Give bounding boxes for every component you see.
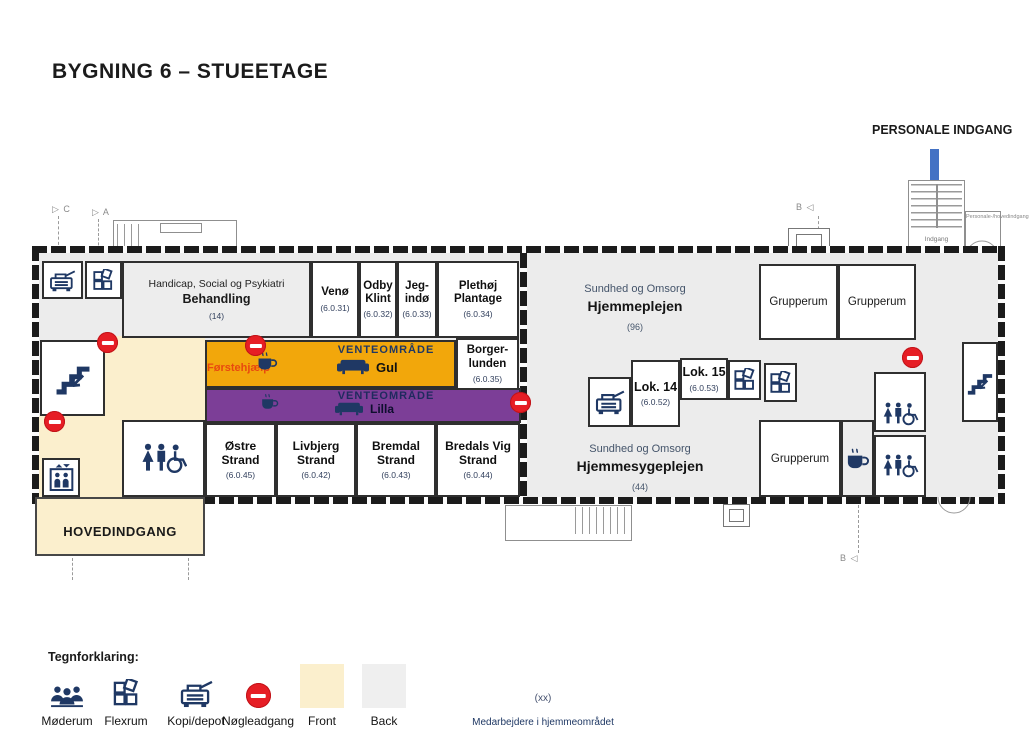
room-lok14-number: (6.0.52)	[641, 397, 670, 407]
exterior-shaft-south-inner	[729, 509, 744, 522]
legend-label-moederum: Møderum	[41, 714, 92, 728]
venteomraade-gul-title: VENTEOMRÅDE	[306, 344, 466, 356]
legend-label-flexrum: Flexrum	[104, 714, 147, 728]
legend-label-noegleadgang: Nøgleadgang	[222, 714, 294, 728]
room-venoe-name: Venø	[321, 286, 348, 299]
flexroom-icon-b	[769, 371, 793, 395]
room-plethoej-plantage: Plethøj Plantage (6.0.34)	[437, 261, 519, 338]
area-hjemmeplejen: Sundhed og Omsorg Hjemmeplejen (96)	[540, 283, 730, 333]
section-marker-b-top: B ◁	[796, 202, 814, 213]
room-bremdal-strand: Bremdal Strand (6.0.43)	[356, 423, 436, 497]
copier-icon	[49, 269, 76, 292]
no-entry-icon-legend	[246, 683, 271, 708]
section-marker-a: ▷ A	[92, 207, 110, 218]
flexroom-icon-legend	[112, 679, 141, 708]
room-venoe-number: (6.0.31)	[320, 303, 349, 313]
room-venoe: Venø (6.0.31)	[311, 261, 359, 338]
room-jegindoe-name: Jeg-indø	[399, 280, 435, 306]
room-plethoej-name: Plethøj Plantage	[439, 280, 517, 306]
room-plethoej-number: (6.0.34)	[463, 309, 492, 319]
room-lok14: Lok. 14 (6.0.52)	[631, 360, 680, 427]
legend-item-flexrum: Flexrum	[96, 674, 156, 728]
wall-west	[32, 246, 39, 504]
legend-item-moederum: Møderum	[36, 674, 98, 728]
hjemmesygeplejen-line2: Hjemmesygeplejen	[540, 458, 740, 475]
exterior-landing	[160, 223, 202, 233]
room-borgerlunden: Borger-lunden (6.0.35)	[456, 338, 519, 390]
room-grupperum-2: Grupperum	[838, 264, 916, 340]
venteomraade-lilla-title: VENTEOMRÅDE	[306, 390, 466, 402]
personale-note: Personale-/hovedindgang	[966, 214, 1000, 220]
legend-item-back: Back	[358, 662, 410, 728]
room-livbjerg-number: (6.0.42)	[301, 470, 330, 480]
copier-icon-legend	[180, 679, 213, 708]
room-behandling-count: (14)	[209, 311, 224, 321]
hovedindgang-label: HOVEDINDGANG	[35, 524, 205, 539]
back-swatch	[362, 664, 406, 708]
venteomraade-lilla-name-row: Lilla	[334, 402, 394, 416]
wc-icon-right-top	[881, 402, 919, 426]
section-line-c	[58, 216, 59, 250]
room-livbjerg-name: Livbjerg Strand	[278, 440, 354, 468]
room-behandling-line1: Handicap, Social og Psykiatri	[149, 278, 285, 290]
room-jegindoe-number: (6.0.33)	[402, 309, 431, 319]
room-stairs-left	[40, 340, 105, 416]
room-lok15-name: Lok. 15	[682, 365, 725, 379]
inner-section-wall	[520, 253, 527, 497]
room-elevator	[42, 458, 80, 497]
no-entry-icon-1	[97, 332, 118, 353]
stair-rail	[936, 184, 938, 228]
room-wc-left	[122, 420, 205, 497]
page-title: BYGNING 6 – STUEETAGE	[52, 60, 328, 84]
wall-south	[200, 497, 1005, 504]
grupperum-1-label: Grupperum	[769, 296, 827, 308]
venteomraade-gul-name: Gul	[376, 360, 398, 375]
room-borgerlunden-number: (6.0.35)	[473, 374, 502, 384]
hjemmesygeplejen-count: (44)	[540, 482, 740, 493]
room-bredals-number: (6.0.44)	[463, 470, 492, 480]
room-kopi-depot-left	[42, 261, 83, 299]
legend-label-back: Back	[371, 714, 398, 728]
room-behandling: Handicap, Social og Psykiatri Behandling…	[122, 261, 311, 338]
room-wc-right-top	[874, 372, 926, 432]
no-entry-icon-4	[510, 392, 531, 413]
copier-icon-right	[595, 389, 625, 415]
elevator-icon	[49, 463, 74, 492]
section-line-b-bottom	[858, 505, 859, 553]
staff-count-symbol: (xx)	[535, 693, 552, 704]
room-jegindoe: Jeg-indø (6.0.33)	[397, 261, 437, 338]
venteomraade-lilla-name: Lilla	[370, 402, 394, 416]
hovedindgang-dash-2	[188, 558, 189, 580]
room-bremdal-name: Bremdal Strand	[358, 440, 434, 468]
area-hjemmesygeplejen: Sundhed og Omsorg Hjemmesygeplejen (44)	[540, 443, 740, 493]
room-oestre-name: Østre Strand	[207, 440, 274, 468]
room-borgerlunden-name: Borger-lunden	[458, 344, 517, 370]
room-bremdal-number: (6.0.43)	[381, 470, 410, 480]
room-lok15-number: (6.0.53)	[689, 383, 718, 393]
couch-icon-lilla	[334, 402, 364, 416]
couch-icon-gul	[336, 359, 370, 375]
stairs-icon-left	[54, 361, 92, 395]
front-swatch	[300, 664, 344, 708]
room-grupperum-1: Grupperum	[759, 264, 838, 340]
grupperum-3-label: Grupperum	[771, 453, 829, 465]
hjemmesygeplejen-line1: Sundhed og Omsorg	[540, 443, 740, 456]
grupperum-2-label: Grupperum	[848, 296, 906, 308]
wall-east	[998, 246, 1005, 504]
section-marker-c: ▷ C	[52, 204, 71, 215]
hjemmeplejen-line1: Sundhed og Omsorg	[540, 283, 730, 296]
no-entry-icon-2	[245, 335, 266, 356]
room-bredals-vig-strand: Bredals Vig Strand (6.0.44)	[436, 423, 520, 497]
room-bredals-name: Bredals Vig Strand	[438, 440, 518, 468]
room-coffee	[841, 420, 874, 497]
room-stairs-right	[962, 342, 998, 422]
coffee-cup-icon-right	[845, 446, 870, 471]
room-odby-number: (6.0.32)	[363, 309, 392, 319]
hjemmeplejen-count: (96)	[540, 322, 730, 333]
legend-item-noegleadgang: Nøgleadgang	[216, 674, 300, 728]
room-lok15: Lok. 15 (6.0.53)	[680, 358, 728, 400]
floor-plan-page: BYGNING 6 – STUEETAGE PERSONALE INDGANG …	[0, 0, 1036, 739]
wc-icon-right-bottom	[881, 454, 919, 478]
room-oestre-number: (6.0.45)	[226, 470, 255, 480]
room-flexrum-a	[728, 360, 761, 400]
personale-indgang-label: PERSONALE INDGANG	[872, 123, 1012, 137]
indgang-label: Indgang	[908, 236, 965, 243]
room-wc-right-bottom	[874, 435, 926, 497]
meeting-icon	[50, 683, 84, 708]
room-flexrum-left	[85, 261, 122, 299]
wc-icon-left	[140, 443, 187, 474]
stairs-icon-right	[966, 370, 994, 395]
no-entry-icon-5	[902, 347, 923, 368]
room-kopi-depot-right	[588, 377, 631, 427]
venteomraade-gul-name-row: Gul	[336, 359, 398, 375]
room-livbjerg-strand: Livbjerg Strand (6.0.42)	[276, 423, 356, 497]
flexroom-icon-a	[733, 368, 757, 392]
room-behandling-line2: Behandling	[182, 292, 250, 306]
legend-item-staff: (xx) Medarbejdere i hjemmeområdet	[462, 674, 624, 728]
coffee-cup-icon-lilla	[260, 392, 279, 411]
door-arc-south	[936, 497, 972, 515]
room-grupperum-3: Grupperum	[759, 420, 841, 497]
flexroom-icon	[92, 269, 115, 292]
room-odby-name: Odby Klint	[361, 280, 395, 306]
room-lok14-name: Lok. 14	[634, 380, 677, 394]
room-odby-klint: Odby Klint (6.0.32)	[359, 261, 397, 338]
exterior-stair-south-treads	[575, 507, 629, 534]
wall-north	[32, 246, 1005, 253]
hovedindgang-dash-1	[72, 558, 73, 580]
staff-count-label: Medarbejdere i hjemmeområdet	[472, 717, 614, 728]
no-entry-icon-3	[44, 411, 65, 432]
hjemmeplejen-line2: Hjemmeplejen	[540, 298, 730, 315]
room-oestre-strand: Østre Strand (6.0.45)	[205, 423, 276, 497]
legend-item-front: Front	[296, 662, 348, 728]
legend-title: Tegnforklaring:	[48, 650, 139, 664]
room-flexrum-b	[764, 363, 797, 402]
section-marker-b-bottom: B ◁	[840, 553, 858, 564]
legend-label-front: Front	[308, 714, 336, 728]
